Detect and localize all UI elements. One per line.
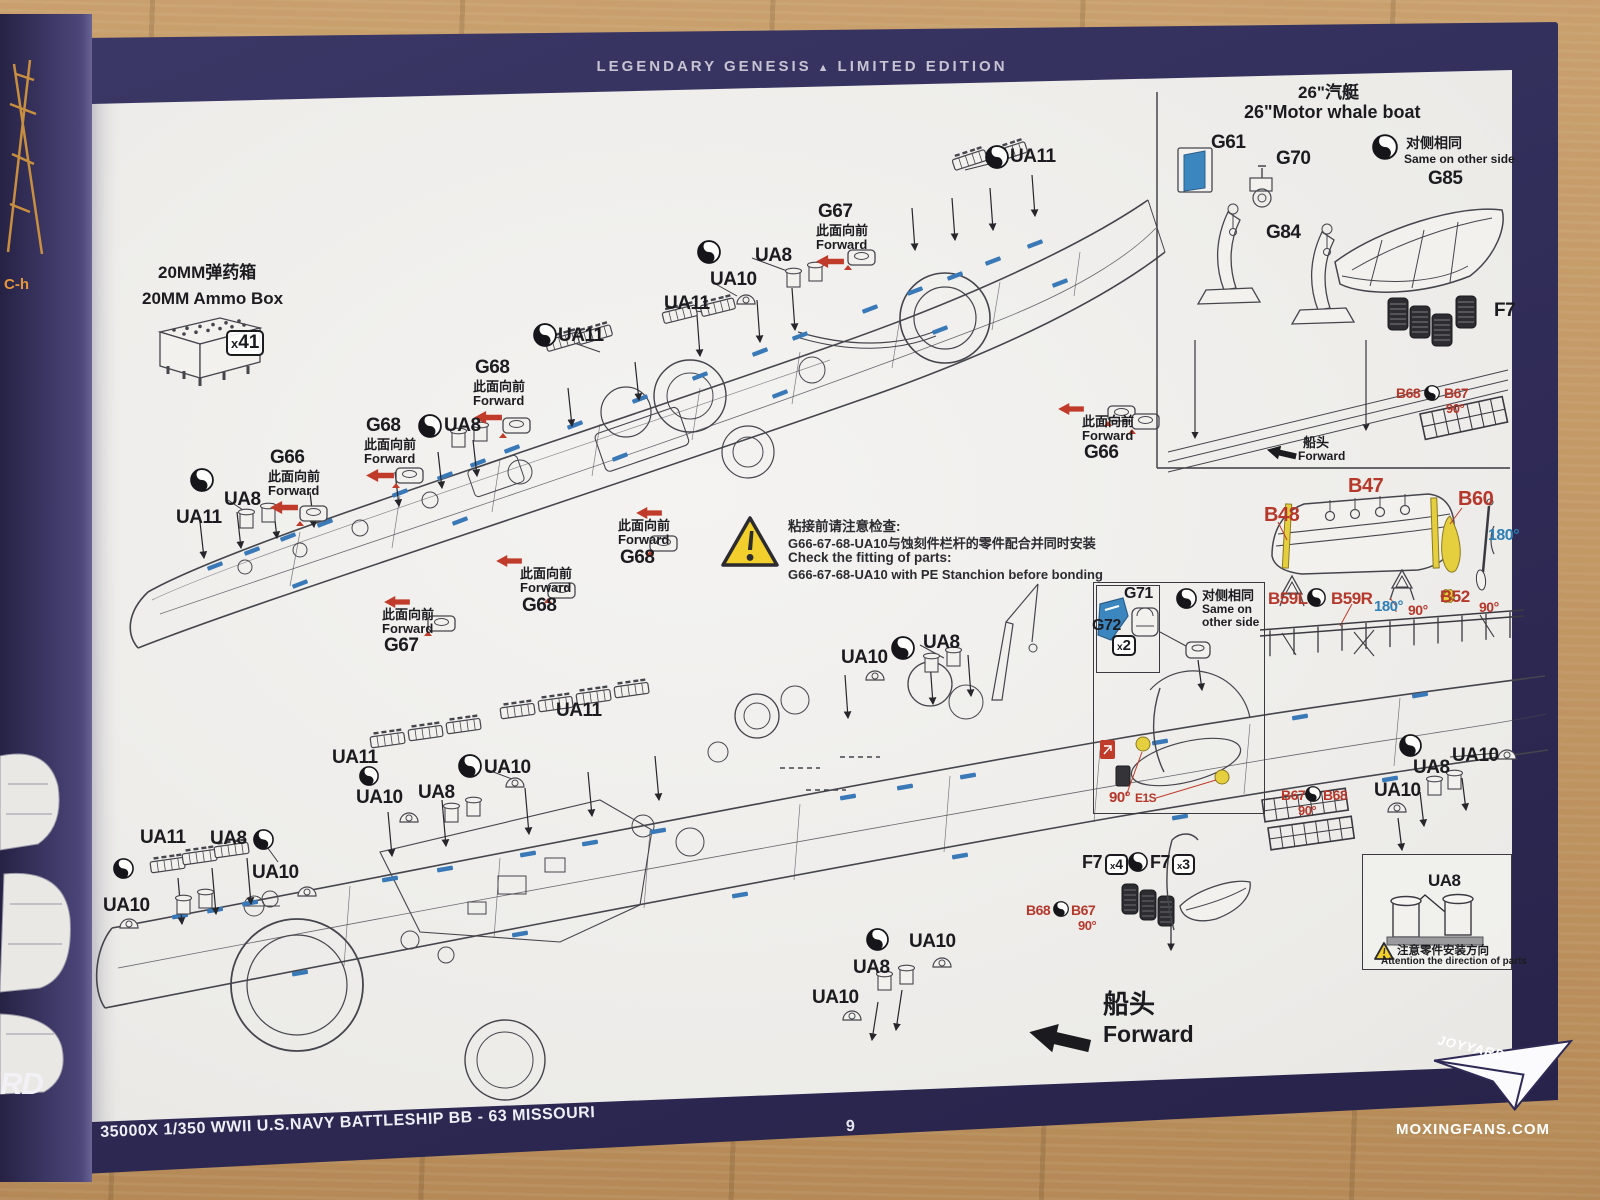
warning-line4: G66-67-68-UA10 with PE Stanchion before …: [788, 567, 1103, 582]
g71-g72-inset-box: [1093, 582, 1265, 814]
manual-page: [92, 30, 1512, 1190]
page-number: 9: [846, 1118, 856, 1136]
page-header: LEGENDARY GENESIS▲LIMITED EDITION: [92, 58, 1512, 75]
warning-line1: 粘接前请注意检查:: [788, 515, 901, 535]
ammo-box-label-en: 20MM Ammo Box: [142, 290, 283, 308]
warning-line3: Check the fitting of parts:: [788, 550, 952, 565]
header-series-title: LEGENDARY GENESIS: [596, 58, 811, 75]
ua8-box-note-en: Attention the direction of parts: [1381, 957, 1527, 968]
warning-note: 粘接前请注意检查: G66-67-68-UA10与蚀刻件栏杆的零件配合并同时安装…: [716, 505, 1086, 597]
previous-page-fragments: [0, 14, 92, 1196]
header-triangle-icon: ▲: [812, 62, 838, 74]
ua8-direction-box: 注意零件安装方向 Attention the direction of part…: [1362, 854, 1512, 970]
spine-fragment-brand: RD: [0, 1066, 43, 1102]
paper-plane-logo: [1420, 1003, 1590, 1136]
g71-g72-parts-frame: [1096, 585, 1160, 673]
warning-triangle-icon: [720, 515, 780, 571]
ammo-box-label-cn: 20MM弹药箱: [158, 264, 256, 282]
header-edition-title: LIMITED EDITION: [838, 58, 1008, 75]
spine-fragment-label: C-h: [4, 276, 29, 293]
watermark: MOXINGFANS.COM: [1396, 1121, 1550, 1138]
